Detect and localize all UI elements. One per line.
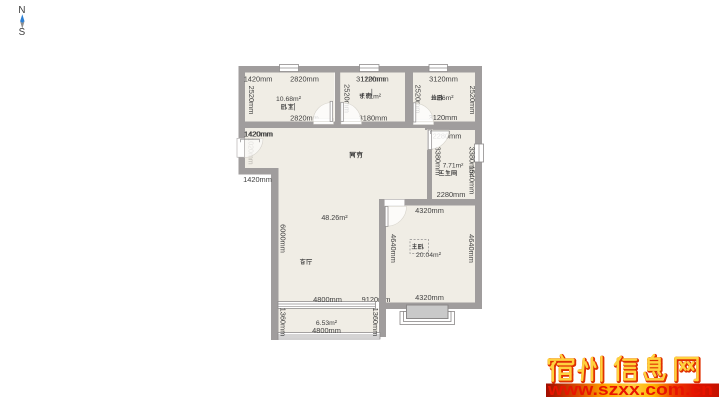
svg-text:20.04m²: 20.04m² (416, 252, 442, 259)
svg-text:1420mm: 1420mm (244, 75, 273, 84)
svg-text:2820mm: 2820mm (290, 75, 319, 84)
svg-text:4640mm: 4640mm (389, 234, 398, 263)
svg-text:2280mm: 2280mm (437, 190, 466, 199)
svg-text:8.01m²: 8.01m² (360, 94, 382, 101)
svg-text:N: N (18, 5, 25, 16)
svg-text:6000mm: 6000mm (279, 224, 288, 253)
svg-text:48.26m²: 48.26m² (321, 213, 348, 222)
svg-text:3120mm: 3120mm (429, 75, 458, 84)
svg-text:6.86m²: 6.86m² (432, 95, 454, 102)
svg-text:2520mm: 2520mm (468, 86, 477, 115)
svg-text:4800mm: 4800mm (313, 295, 342, 304)
svg-text:www.szxx.com.cn: www.szxx.com.cn (547, 380, 713, 399)
svg-text:3180mm: 3180mm (359, 113, 388, 122)
svg-text:7.71m²: 7.71m² (443, 162, 465, 169)
svg-text:3380mm: 3380mm (433, 147, 442, 176)
svg-text:10.68m²: 10.68m² (276, 96, 302, 103)
svg-text:4320mm: 4320mm (415, 206, 444, 215)
svg-text:1120mm: 1120mm (360, 75, 388, 84)
svg-text:1540mm: 1540mm (467, 166, 476, 195)
svg-text:4640mm: 4640mm (467, 234, 476, 263)
svg-text:S: S (19, 27, 26, 38)
svg-text:2520mm: 2520mm (247, 86, 256, 115)
svg-text:4800mm: 4800mm (312, 326, 341, 335)
svg-text:1360mm: 1360mm (371, 308, 380, 337)
svg-text:1420mm: 1420mm (243, 175, 272, 184)
svg-text:1360mm: 1360mm (278, 308, 287, 337)
svg-text:4320mm: 4320mm (415, 293, 444, 302)
